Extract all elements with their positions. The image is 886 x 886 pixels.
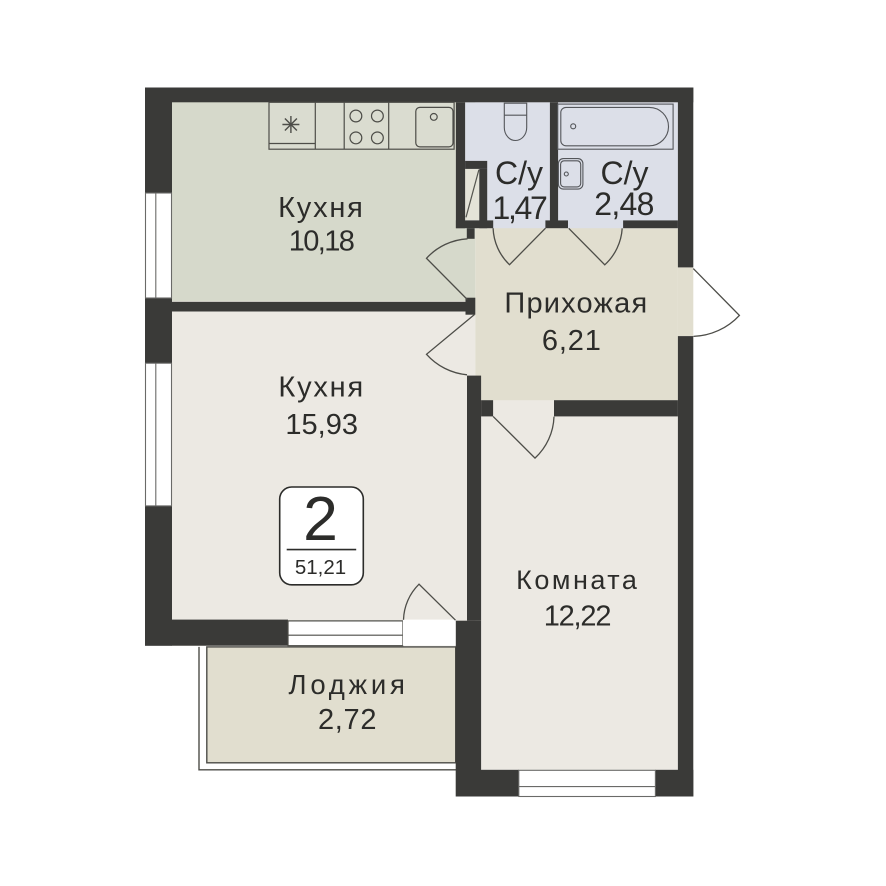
svg-text:Кухня: Кухня [278, 192, 365, 224]
svg-text:Комната: Комната [516, 565, 639, 595]
svg-text:1,47: 1,47 [492, 190, 547, 226]
svg-text:Прихожая: Прихожая [504, 288, 648, 320]
svg-text:Лоджия: Лоджия [288, 669, 408, 700]
svg-text:15,93: 15,93 [285, 409, 358, 441]
svg-text:12,22: 12,22 [544, 600, 611, 632]
svg-text:Кухня: Кухня [278, 372, 365, 404]
svg-text:6,21: 6,21 [542, 325, 602, 357]
svg-text:С/у: С/у [495, 155, 543, 191]
svg-text:2,72: 2,72 [318, 704, 377, 736]
svg-text:10,18: 10,18 [289, 225, 354, 257]
svg-text:51,21: 51,21 [295, 556, 346, 579]
svg-text:2,48: 2,48 [594, 186, 653, 222]
svg-text:2: 2 [303, 484, 338, 554]
